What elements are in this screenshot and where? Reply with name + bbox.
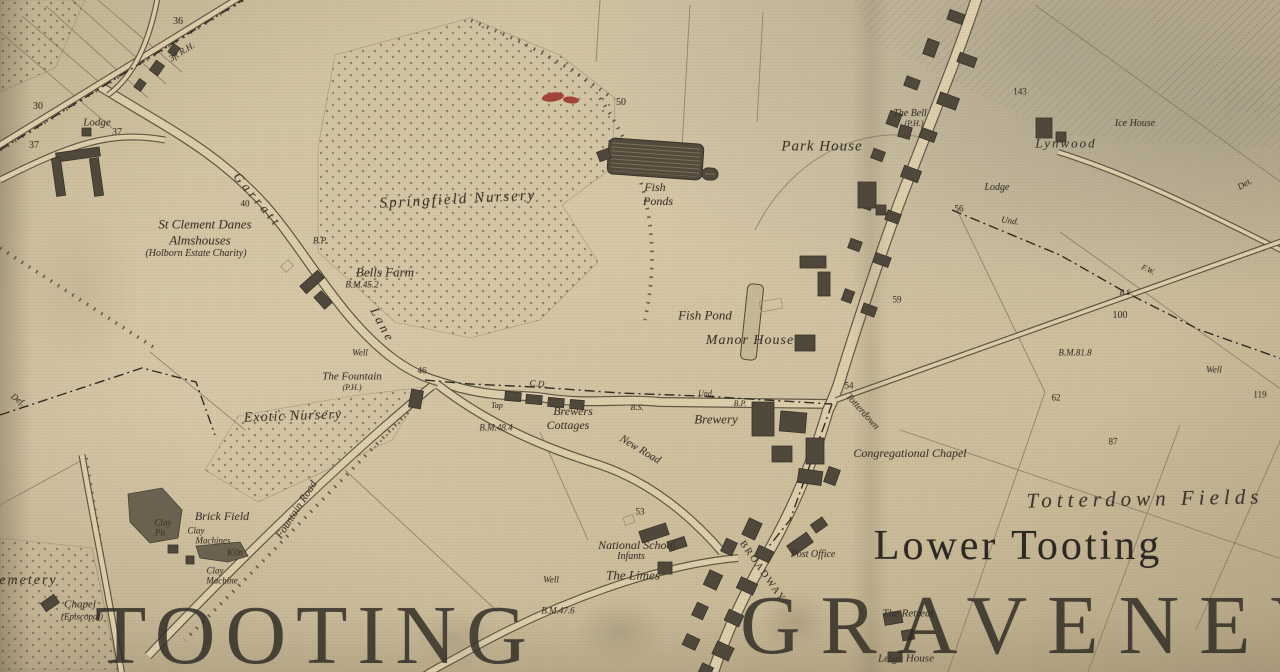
map-label: C.D.: [529, 379, 547, 390]
map-label: The Fountain: [322, 372, 382, 383]
map-label: Post Office: [791, 550, 836, 560]
map-label: Clay: [188, 527, 205, 536]
map-label: 119: [1253, 391, 1266, 400]
map-label: Manor House: [706, 334, 794, 348]
map-label: 53: [636, 508, 645, 517]
map-label: 100: [1113, 311, 1128, 321]
map-label: B.S.: [1120, 289, 1133, 297]
map-label: 87: [1109, 438, 1118, 447]
map-label: Ice House: [1115, 119, 1155, 129]
map-label: Well: [352, 349, 368, 358]
map-label: Machines: [196, 537, 231, 546]
map-label: Congregational Chapel: [853, 447, 966, 459]
map-label: Clay: [207, 567, 224, 576]
map-label: Und.: [698, 390, 714, 398]
map-label: F.W.: [1140, 263, 1156, 276]
map-label: TOOTING: [95, 594, 537, 672]
map-label: Chapel: [64, 600, 96, 611]
map-label: Springfield Nursery: [379, 188, 536, 211]
map-label: 37: [29, 141, 39, 151]
map-label: (P.H.): [905, 120, 924, 128]
map-label: B.M.47.6: [541, 607, 574, 616]
map-label: B.M.45.2: [345, 281, 378, 290]
map-label: Brewery: [694, 413, 738, 426]
map-label: B.S.: [631, 404, 644, 412]
map-label: Kiln: [227, 549, 243, 558]
map-label: The Bell: [893, 109, 927, 119]
map-label: 37: [112, 128, 122, 138]
map-label: 143: [1013, 88, 1027, 97]
map-label: Park House: [781, 140, 862, 155]
map-label: GRAVENEY: [740, 584, 1280, 668]
map-label: B.P.: [313, 237, 327, 246]
map-label: Totterdown: [843, 392, 880, 432]
map-canvas[interactable]: 363ft R.H.30Lodge3737GarrattLane40St Cle…: [0, 0, 1280, 672]
map-label: Ponds: [643, 195, 673, 207]
map-label: Totterdown Fields: [1026, 486, 1263, 511]
map-label: Bells Farm: [356, 266, 414, 279]
map-label: Fish: [644, 181, 665, 193]
map-labels-layer: 363ft R.H.30Lodge3737GarrattLane40St Cle…: [0, 0, 1280, 672]
map-label: 30: [33, 102, 43, 112]
map-label: Almshouses: [169, 234, 230, 247]
map-label: National School: [598, 539, 676, 551]
map-label: Cottages: [547, 419, 590, 431]
map-label: Machine: [206, 577, 238, 586]
map-label: 59: [893, 296, 902, 305]
map-label: Brewers: [553, 405, 593, 417]
map-label: New Road: [618, 434, 663, 467]
map-label: (Holborn Estate Charity): [145, 249, 246, 259]
map-label: Pit: [155, 529, 166, 538]
map-label: B.M.81.8: [1058, 349, 1091, 358]
map-label: 50: [616, 98, 626, 108]
map-label: Well: [543, 576, 559, 585]
map-label: (P.H.): [343, 384, 362, 392]
map-label: Und.: [1001, 215, 1020, 226]
map-label: Def.: [9, 392, 27, 408]
map-label: The Limes: [606, 569, 660, 582]
map-label: Lodge: [985, 183, 1010, 193]
map-label: 62: [1052, 394, 1061, 403]
map-label: Lynwood: [1035, 137, 1096, 150]
map-label: Exotic Nursery: [244, 408, 343, 425]
map-label: 46: [418, 367, 427, 376]
map-label: 40: [241, 200, 250, 209]
map-label: B.P.: [734, 400, 747, 408]
map-label: St Clement Danes: [158, 218, 251, 231]
map-label: Tap: [491, 402, 503, 410]
map-label: Det.: [1236, 176, 1254, 191]
map-label: Clay: [155, 519, 172, 528]
map-label: Lower Tooting: [874, 525, 1162, 567]
map-label: Fountain Road: [274, 479, 319, 541]
map-label: 54: [845, 382, 854, 391]
map-label: Infants: [617, 552, 645, 562]
map-label: B.M.48.4: [479, 424, 512, 433]
map-label: Fish Pond: [678, 309, 732, 322]
map-label: 36: [173, 17, 183, 27]
map-label: 56: [955, 205, 964, 214]
map-label: Cemetery: [0, 574, 58, 588]
map-label: Brick Field: [195, 510, 249, 522]
map-label: Lodge: [83, 118, 111, 129]
map-label: Lane: [368, 305, 397, 345]
map-label: Well: [1206, 366, 1222, 375]
map-label: 3ft R.H.: [168, 41, 197, 64]
